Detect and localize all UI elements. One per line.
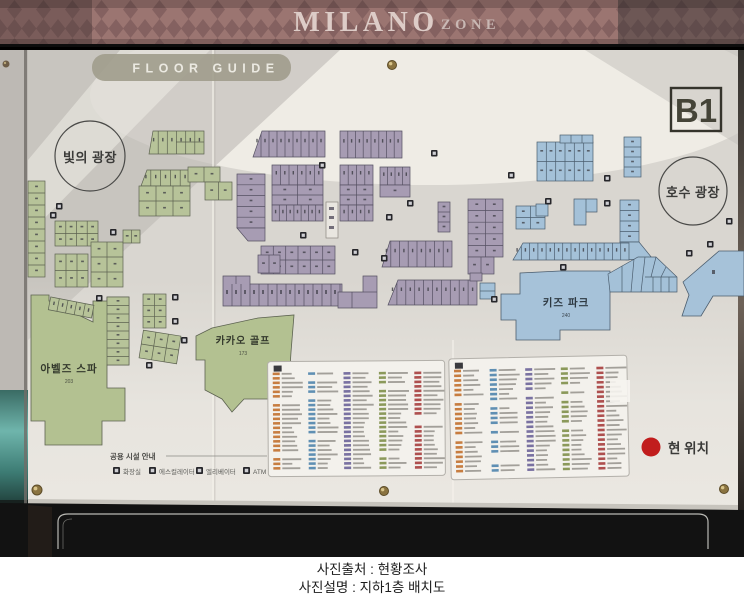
svg-text:현 위치: 현 위치 (668, 441, 709, 456)
svg-text:화장실: 화장실 (123, 467, 141, 476)
svg-text:아벨즈 스파: 아벨즈 스파 (40, 362, 97, 375)
svg-text:엘리베이터: 엘리베이터 (206, 467, 236, 476)
svg-text:호수 광장: 호수 광장 (666, 185, 720, 200)
svg-text:공용 시설 안내: 공용 시설 안내 (110, 451, 156, 461)
svg-text:MILANO: MILANO (293, 7, 438, 38)
svg-text:203: 203 (65, 379, 74, 385)
svg-text:에스컬레이터: 에스컬레이터 (159, 467, 195, 476)
svg-text:사진출처 : 현황조사: 사진출처 : 현황조사 (317, 562, 428, 577)
svg-text:173: 173 (239, 351, 248, 357)
svg-text:FLOOR GUIDE: FLOOR GUIDE (132, 62, 279, 76)
svg-text:ATM: ATM (253, 469, 266, 476)
svg-text:빛의 광장: 빛의 광장 (63, 150, 117, 165)
svg-text:B1: B1 (675, 92, 717, 129)
svg-text:키즈 파크: 키즈 파크 (543, 296, 590, 309)
svg-text:240: 240 (562, 313, 571, 319)
svg-text:카카오 골프: 카카오 골프 (216, 334, 271, 347)
svg-text:사진설명 : 지하1층 배치도: 사진설명 : 지하1층 배치도 (299, 580, 446, 595)
svg-text:ZONE: ZONE (441, 17, 500, 33)
